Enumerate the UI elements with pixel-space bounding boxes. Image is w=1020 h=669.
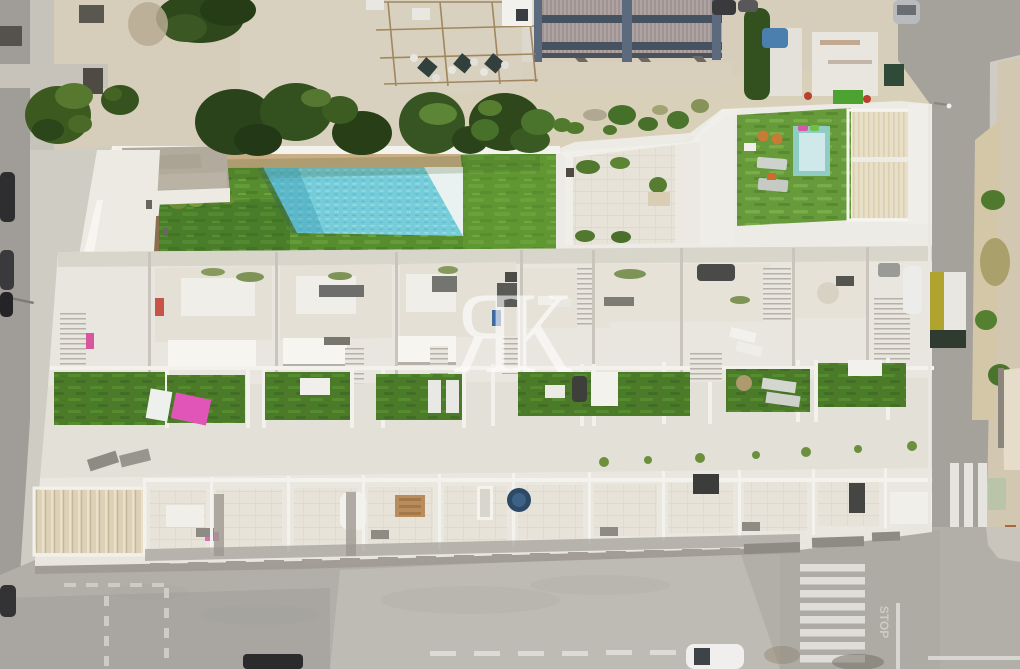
svg-text:STOP: STOP xyxy=(877,606,891,638)
svg-text:ЯK: ЯK xyxy=(454,268,573,397)
